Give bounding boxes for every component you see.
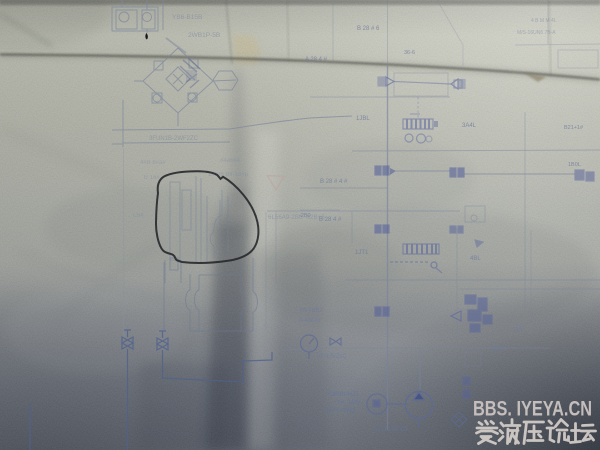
svg-text:YB6-B15B: YB6-B15B xyxy=(172,14,202,21)
svg-text:11B: 11B xyxy=(513,327,523,333)
svg-text:2WB1P-5B: 2WB1P-5B xyxy=(188,32,220,39)
svg-text:A 28 4 #: A 28 4 # xyxy=(305,57,328,63)
svg-text:3A4L: 3A4L xyxy=(462,123,477,129)
svg-text:B 28 # 4 #: B 28 # 4 # xyxy=(320,179,348,185)
svg-text:#4a6#4: #4a6#4 xyxy=(220,158,241,164)
svg-text:B 28 4 #: B 28 4 # xyxy=(319,217,342,223)
svg-text:1JBL: 1JBL xyxy=(356,116,370,122)
svg-text:4B2#1: 4B2#1 xyxy=(490,346,508,352)
svg-text:KF-LB/ZsC: KF-LB/ZsC xyxy=(317,354,347,360)
svg-text:A3YF133-C3: A3YF133-C3 xyxy=(373,427,408,433)
svg-text:B 28 # 6: B 28 # 6 xyxy=(357,26,380,32)
svg-text:6L56A9-2B6 π2B+6: 6L56A9-2B6 π2B+6 xyxy=(268,214,325,221)
svg-text:4#B 6#a#: 4#B 6#a# xyxy=(140,160,166,166)
svg-text:4BL: 4BL xyxy=(470,256,481,262)
svg-text:-2B0: -2B0 xyxy=(299,213,311,219)
svg-text:B21+1#: B21+1# xyxy=(564,125,584,131)
svg-text:LB4: LB4 xyxy=(133,213,144,219)
svg-text:A-49EZs: A-49EZs xyxy=(299,318,321,324)
svg-text:YA_16W: YA_16W xyxy=(337,400,361,406)
svg-text:1JT1: 1JT1 xyxy=(355,250,369,256)
svg-text:BBS. IYEYA.CN: BBS. IYEYA.CN xyxy=(473,397,592,421)
svg-text:3FUN1B-2WF2ZC: 3FUN1B-2WF2ZC xyxy=(149,136,199,142)
svg-text:36-6: 36-6 xyxy=(404,50,415,56)
svg-text:1B0L: 1B0L xyxy=(568,162,581,168)
svg-text:YA-18BZ: YA-18BZ xyxy=(299,308,323,314)
svg-text:B 16#: B 16# xyxy=(144,175,160,181)
svg-text:YJB0N-HZJ: YJB0N-HZJ xyxy=(327,392,359,398)
svg-text:4 B M M 4L: 4 B M M 4L xyxy=(531,18,557,24)
svg-text:34YY/-W16: 34YY/-W16 xyxy=(325,408,356,414)
svg-text:M/S-16UN6 7B-A: M/S-16UN6 7B-A xyxy=(517,30,556,36)
